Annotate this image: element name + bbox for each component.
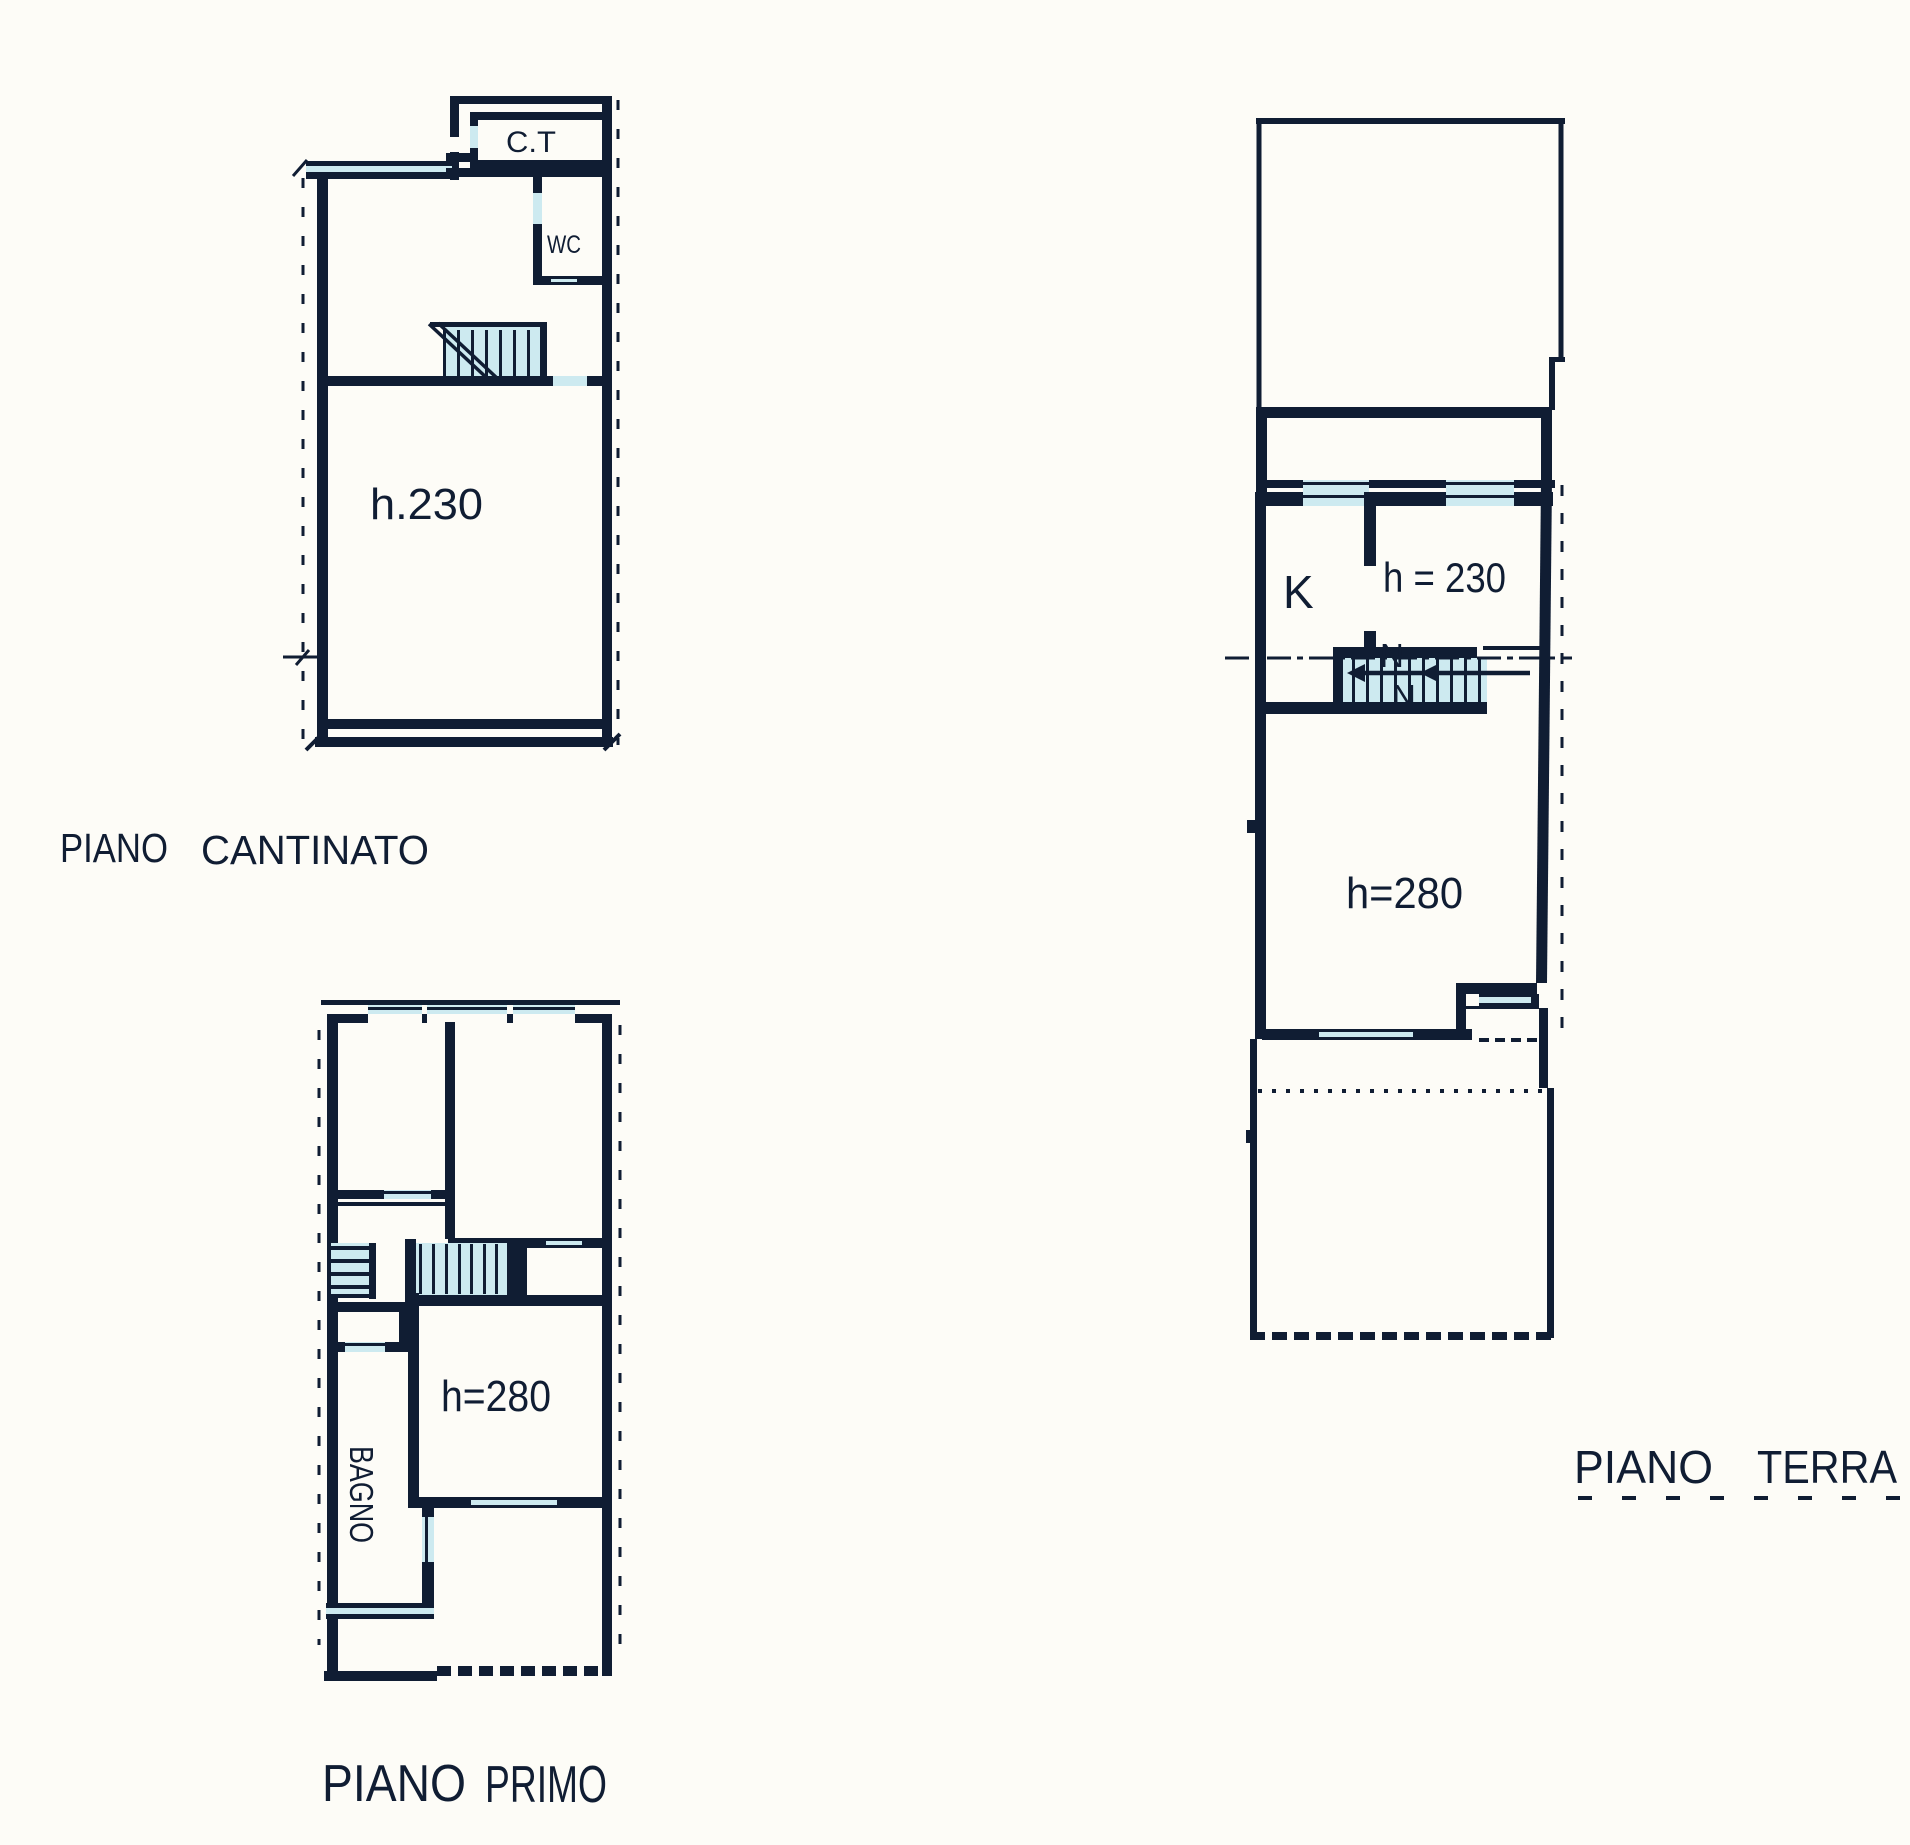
svg-text:PIANO: PIANO: [1574, 1441, 1713, 1493]
svg-text:h=280: h=280: [441, 1372, 551, 1421]
svg-text:WC: WC: [547, 231, 581, 259]
svg-text:C.T: C.T: [506, 126, 556, 159]
svg-text:PRIMO: PRIMO: [485, 1756, 607, 1814]
svg-text:K: K: [1283, 566, 1314, 618]
svg-text:PIANO: PIANO: [60, 825, 168, 871]
svg-text:h = 230: h = 230: [1383, 554, 1506, 601]
svg-text:h.230: h.230: [370, 480, 483, 529]
svg-text:h=280: h=280: [1346, 869, 1463, 918]
svg-text:N: N: [1380, 637, 1404, 674]
svg-text:CANTINATO: CANTINATO: [201, 827, 429, 873]
svg-text:TERRA: TERRA: [1757, 1441, 1897, 1493]
svg-text:BAGNO: BAGNO: [343, 1446, 380, 1543]
svg-text:PIANO: PIANO: [322, 1755, 466, 1813]
